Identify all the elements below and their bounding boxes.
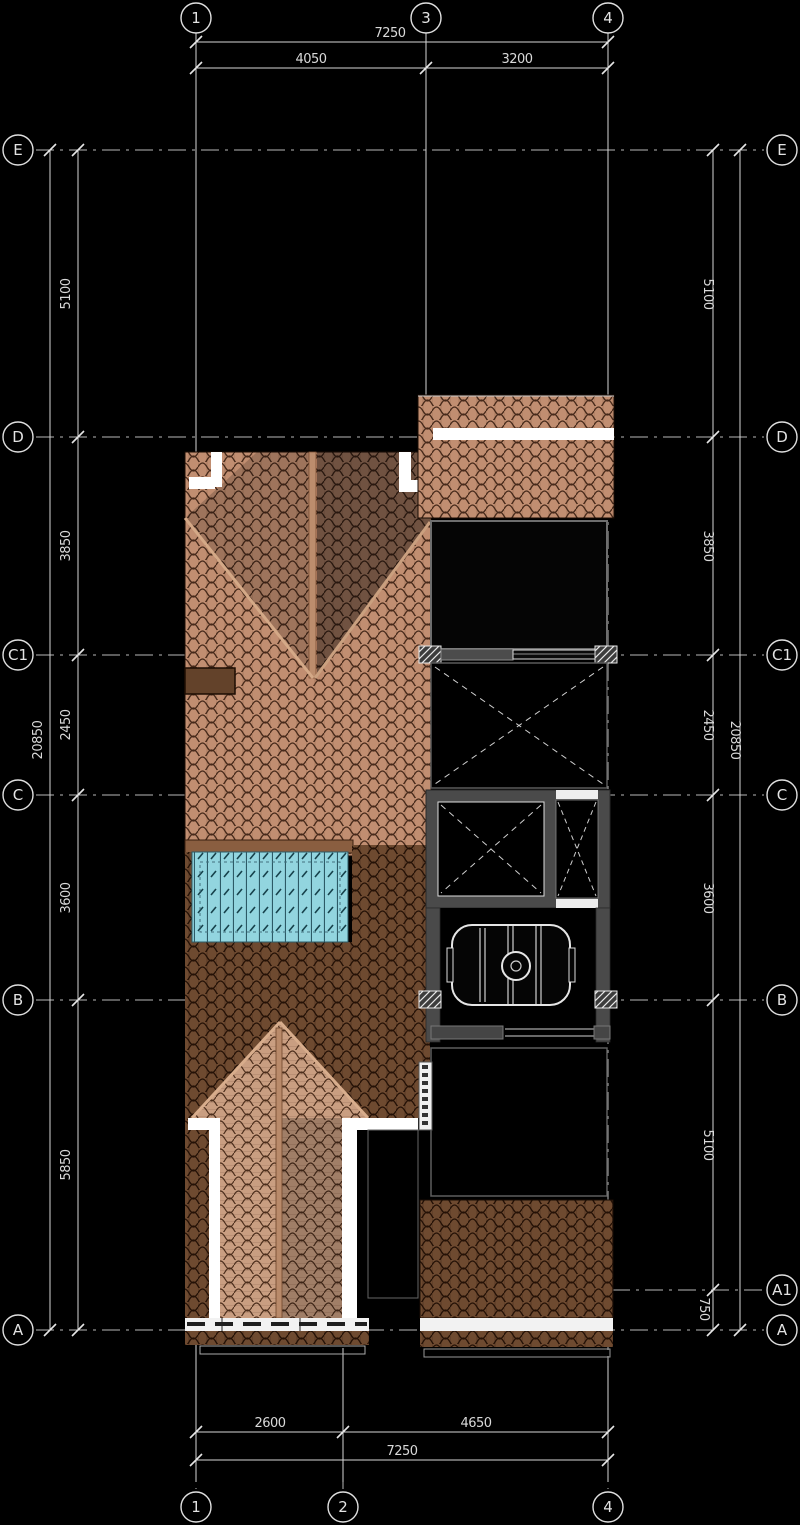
- vent-strip: [419, 1062, 432, 1130]
- axis-bubble-left-A: A: [3, 1315, 33, 1345]
- terrace-room: [419, 1048, 607, 1196]
- dim-right-seg-6: 750: [696, 1297, 711, 1321]
- axis-bubble-right-C: C: [767, 780, 797, 810]
- extension-lines-bottom: [196, 1345, 608, 1482]
- water-tank: [447, 925, 575, 1005]
- right-rooms: [419, 521, 617, 1196]
- lower-right-roof: [420, 1200, 613, 1357]
- axis-label: C1: [772, 646, 792, 664]
- axis-bubble-left-C: C: [3, 780, 33, 810]
- window-band: [556, 790, 598, 799]
- dim-right-seg-1: 5100: [700, 278, 715, 309]
- axis-bubble-right-E: E: [767, 135, 797, 165]
- axis-bubble-left-E: E: [3, 135, 33, 165]
- dim-right-seg-2: 3850: [700, 530, 715, 561]
- axis-label: 2: [338, 1498, 348, 1516]
- roof-lower-tiles-strip: [185, 852, 192, 942]
- upper-right-ridge-band: [433, 428, 614, 440]
- tank-cap: [502, 952, 530, 980]
- dim-bottom-seg-2: 4650: [460, 1416, 491, 1431]
- upper-void-room: [431, 521, 607, 649]
- axis-bubble-bottom-2: 2: [328, 1492, 358, 1522]
- axis-bubble-bottom-1: 1: [181, 1492, 211, 1522]
- main-roof: [185, 452, 431, 1354]
- axis-label: B: [777, 991, 787, 1009]
- dim-right-total: 20850: [727, 721, 742, 760]
- axis-bubble-right-C1: C1: [767, 640, 797, 670]
- axis-label: A: [13, 1321, 24, 1339]
- axis-label: 4: [603, 9, 613, 27]
- dim-left-seg-1: 5100: [59, 278, 74, 309]
- dim-top-seg-2: 3200: [501, 52, 532, 67]
- upper-right-roof: [418, 395, 614, 518]
- dim-bottom-total: 7250: [386, 1444, 417, 1459]
- stair-elevator-block: [426, 790, 610, 908]
- roof-plan-canvas: 7250 4050 3200 2600 4650 7250 5100 3850 …: [0, 0, 800, 1525]
- column-hatch: [595, 991, 617, 1008]
- axis-bubble-top-1: 1: [181, 3, 211, 33]
- axis-bubble-right-A1: A1: [767, 1275, 797, 1305]
- roof-lower-tiles-right: [352, 845, 430, 1118]
- skylight: [192, 852, 348, 942]
- axis-bubble-left-C1: C1: [3, 640, 33, 670]
- column-hatch: [419, 991, 441, 1008]
- dim-right-seg-4: 3600: [700, 882, 715, 913]
- axis-bubble-right-B: B: [767, 985, 797, 1015]
- window-band: [556, 899, 598, 908]
- axis-label: 4: [603, 1498, 613, 1516]
- dim-left-seg-4: 3600: [59, 882, 74, 913]
- dim-right-seg-5: 5100: [700, 1129, 715, 1160]
- chimney: [185, 668, 235, 694]
- lower-right-ridge-band: [420, 1318, 613, 1331]
- dim-bottom-seg-1: 2600: [254, 1416, 285, 1431]
- open-shaft: [431, 663, 607, 788]
- axis-label: D: [12, 428, 24, 446]
- axis-bubble-left-D: D: [3, 422, 33, 452]
- axis-label: E: [13, 141, 22, 159]
- axis-label: E: [777, 141, 786, 159]
- axis-label: B: [13, 991, 23, 1009]
- column-hatch: [419, 646, 441, 663]
- axis-label: 1: [191, 1498, 201, 1516]
- axis-bubble-left-B: B: [3, 985, 33, 1015]
- axis-label: C1: [8, 646, 28, 664]
- roof-plan-drawing: 7250 4050 3200 2600 4650 7250 5100 3850 …: [0, 0, 800, 1525]
- axis-bubble-bottom-4: 4: [593, 1492, 623, 1522]
- axis-label: D: [776, 428, 788, 446]
- dim-top-total: 7250: [374, 26, 405, 41]
- lower-right-eave-outline: [424, 1349, 610, 1357]
- axis-label: A1: [772, 1281, 792, 1299]
- axis-bubble-top-3: 3: [411, 3, 441, 33]
- eave-band: [185, 1318, 369, 1354]
- axis-bubble-top-4: 4: [593, 3, 623, 33]
- gable-ridge: [276, 1028, 282, 1318]
- dim-top-seg-1: 4050: [295, 52, 326, 67]
- gable-void: [368, 1130, 418, 1298]
- dim-left-seg-3: 2450: [59, 709, 74, 740]
- axis-label: 1: [191, 9, 201, 27]
- axis-bubble-right-A: A: [767, 1315, 797, 1345]
- tank-room: [426, 908, 610, 1042]
- roof-ridge-vertical: [309, 452, 316, 678]
- axis-label: 3: [421, 9, 431, 27]
- column-hatch: [595, 646, 617, 663]
- axis-label: C: [13, 786, 23, 804]
- dim-right-seg-3: 2450: [700, 709, 715, 740]
- axis-bubble-right-D: D: [767, 422, 797, 452]
- axis-label: A: [777, 1321, 788, 1339]
- dim-left-total: 20850: [31, 720, 46, 759]
- roof-ridge-horizontal: [185, 840, 353, 853]
- dim-left-seg-2: 3850: [59, 530, 74, 561]
- window-band: [513, 650, 595, 659]
- dim-left-seg-5: 5850: [59, 1149, 74, 1180]
- axis-label: C: [777, 786, 787, 804]
